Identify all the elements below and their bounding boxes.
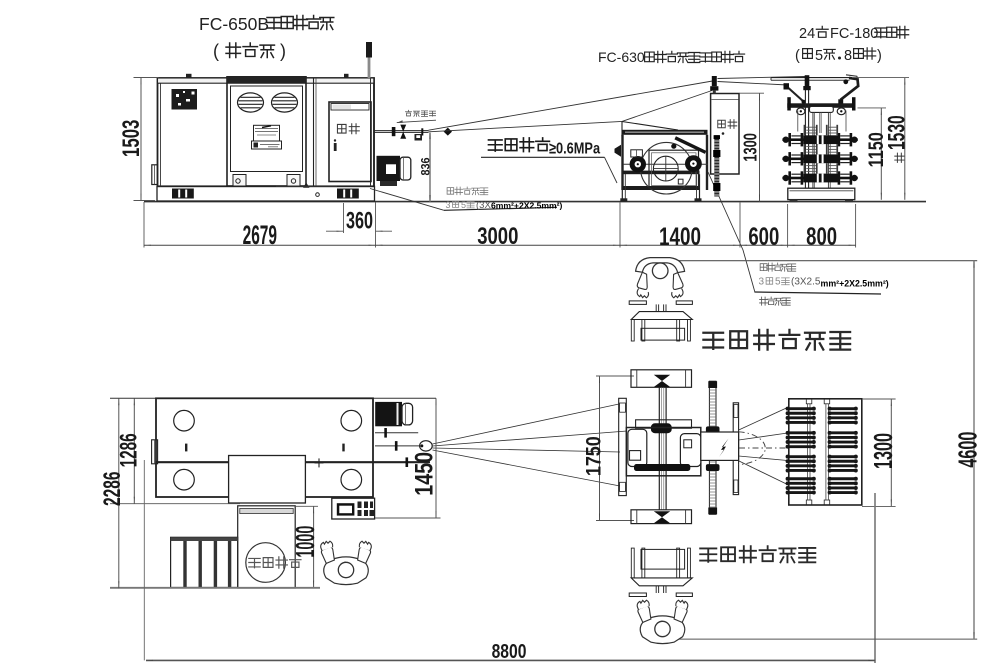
svg-text:600: 600	[748, 222, 779, 250]
svg-text:1000: 1000	[292, 526, 320, 558]
svg-text:FC-630: FC-630	[598, 49, 645, 65]
svg-text:1400: 1400	[659, 222, 701, 250]
svg-text:): )	[280, 41, 286, 61]
svg-text:(3X2.5: (3X2.5	[791, 277, 821, 288]
svg-text:): )	[877, 48, 882, 64]
svg-text:3: 3	[446, 200, 451, 210]
svg-text:1300: 1300	[868, 433, 898, 469]
svg-text:1450: 1450	[410, 452, 438, 496]
svg-text:6mm²+2X2.5mm²): 6mm²+2X2.5mm²)	[491, 200, 563, 210]
svg-text:(3X: (3X	[476, 200, 491, 211]
svg-text:1750: 1750	[582, 436, 606, 476]
svg-text:2286: 2286	[100, 472, 126, 506]
svg-text:(: (	[213, 41, 219, 61]
svg-text:1530: 1530	[885, 115, 911, 150]
svg-text:8800: 8800	[492, 639, 527, 663]
svg-text:1286: 1286	[116, 433, 142, 467]
svg-text:2679: 2679	[243, 219, 277, 250]
svg-text:mm²+2X2.5mm²): mm²+2X2.5mm²)	[821, 279, 889, 289]
svg-text:836: 836	[420, 158, 432, 176]
svg-text:360: 360	[346, 209, 373, 235]
svg-text:1300: 1300	[741, 133, 761, 162]
svg-text:5: 5	[815, 48, 823, 64]
svg-text:≥0.6MPa: ≥0.6MPa	[549, 140, 601, 158]
svg-text:8: 8	[844, 48, 852, 64]
svg-text:5: 5	[775, 277, 781, 288]
svg-text:FC-650B: FC-650B	[199, 14, 269, 34]
svg-text:800: 800	[806, 222, 837, 250]
svg-text:4600: 4600	[953, 432, 983, 468]
svg-text:24: 24	[799, 26, 815, 42]
svg-text:5: 5	[461, 200, 466, 210]
svg-text:3000: 3000	[477, 221, 518, 249]
svg-text:3: 3	[759, 277, 765, 288]
svg-text:(: (	[795, 48, 800, 64]
svg-text:1503: 1503	[118, 120, 145, 157]
svg-text:FC-180: FC-180	[830, 26, 878, 42]
